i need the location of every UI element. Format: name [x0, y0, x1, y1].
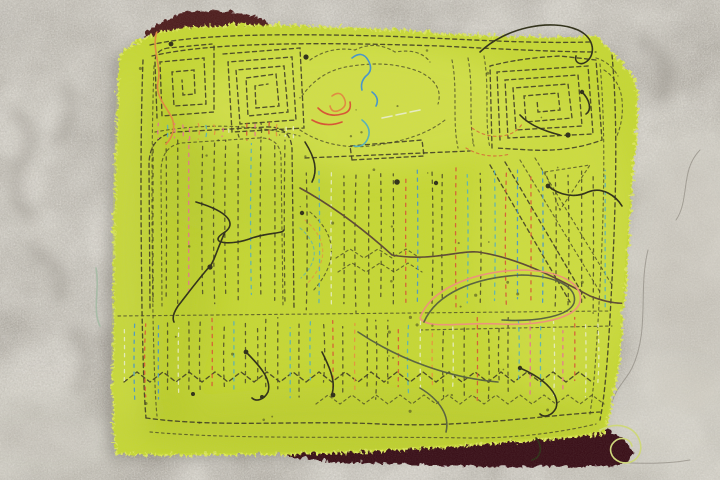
photo-grain-overlay: [0, 0, 720, 480]
photo-mola-on-concrete: Bright chartreuse mola textile panel, ha…: [0, 0, 720, 480]
photo-stage: Bright chartreuse mola textile panel, ha…: [0, 0, 720, 480]
